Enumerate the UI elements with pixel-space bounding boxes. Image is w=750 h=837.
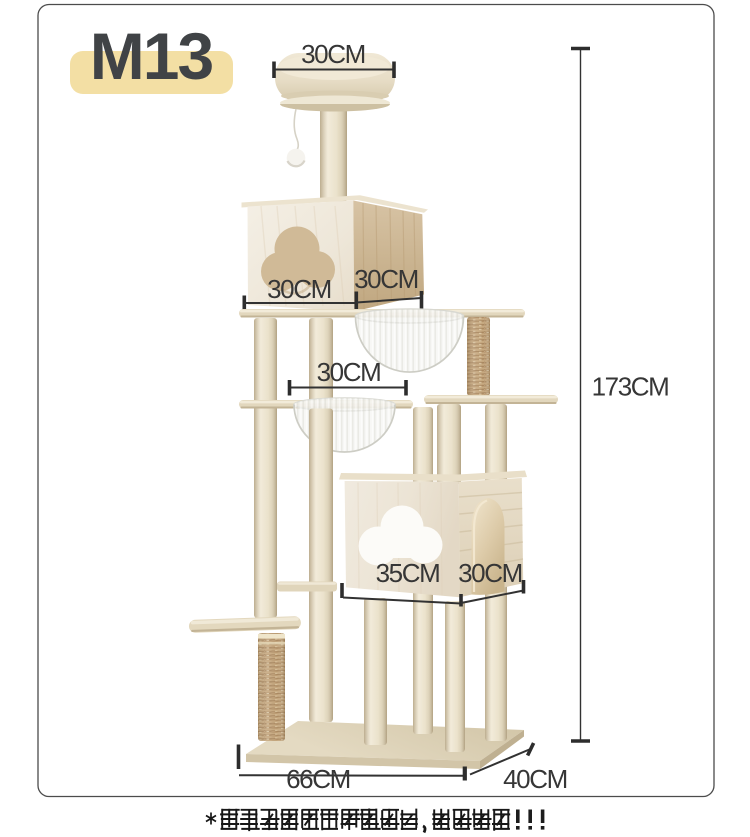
svg-text:30CM: 30CM <box>301 39 365 69</box>
svg-text:M13: M13 <box>90 19 213 93</box>
svg-text:30CM: 30CM <box>267 274 331 304</box>
svg-text:30CM: 30CM <box>317 357 381 387</box>
svg-text:30CM: 30CM <box>458 558 522 588</box>
svg-text:66CM: 66CM <box>286 764 350 794</box>
svg-text:30CM: 30CM <box>354 264 418 294</box>
svg-text:40CM: 40CM <box>503 764 567 794</box>
svg-text:35CM: 35CM <box>376 558 440 588</box>
svg-text:173CM: 173CM <box>592 372 669 402</box>
